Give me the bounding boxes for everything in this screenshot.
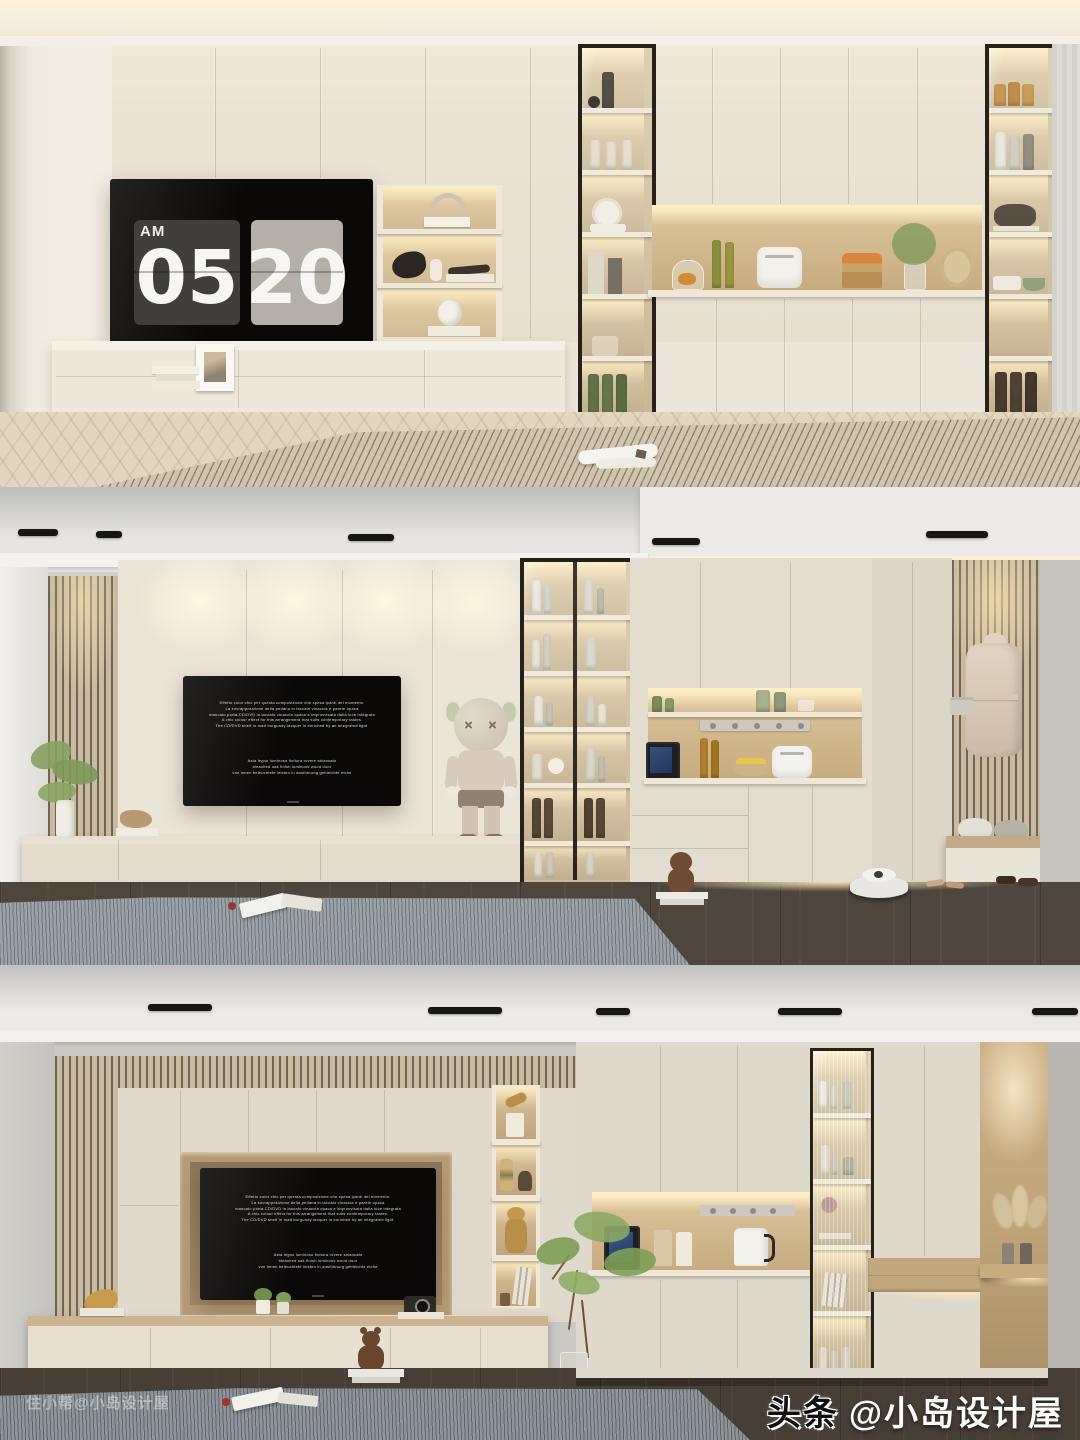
fruit-bowl [733,764,769,776]
kaws-torso [458,750,504,792]
bottle [544,586,551,614]
cabinet-base-shadow [576,1368,1048,1386]
clock-hour: 05 [136,241,239,315]
preserve-jar [1008,82,1020,106]
book-stack [348,1369,404,1377]
kaws-glove [446,786,458,797]
shelf-board [524,615,634,620]
decor-disc [588,96,600,108]
pampas-vase [1020,1243,1032,1265]
toaster-slots [780,752,804,755]
power-strip-knob [732,723,738,729]
canister [774,692,786,712]
console-seam [150,1328,151,1370]
book-stack [398,1312,444,1319]
power-strip-knob [750,1208,756,1214]
shelf-board [492,1196,540,1201]
niche-light-strip [592,1192,810,1199]
wood-slat-band [118,1056,576,1088]
fruit-stand [842,253,882,288]
console-seam [480,1328,481,1370]
console-seam [320,840,321,880]
power-strip-knob [730,1208,736,1214]
pampas-plume [1012,1185,1028,1227]
bottle [534,852,542,878]
bottle [586,748,595,782]
framed-photo [608,258,622,294]
canister [756,690,770,712]
wine-bottle [995,372,1007,416]
spice-jar [665,698,674,712]
recessed-linear-light [348,534,394,541]
appliance-niche [648,688,862,780]
book-stack [150,381,200,389]
display-column [492,1085,540,1308]
cabinet-door-seam [784,299,785,415]
crown-molding [0,1030,1080,1042]
recessed-linear-light [596,1008,630,1015]
bottle [534,696,543,726]
recessed-linear-light [1032,1008,1078,1015]
book-stack [156,374,196,381]
console-seam [270,1328,271,1370]
shelf-board [989,232,1056,237]
shelf-board-inner [648,712,862,717]
shelf-board [989,356,1056,361]
coffee-machine [757,247,802,288]
wine-glass [590,140,600,170]
tv-glare [183,676,401,806]
shelf-board [989,170,1056,175]
tv-caption-line: The CD/DVD shelf in matt burgundy lacque… [183,723,401,729]
right-wall [1040,560,1080,882]
book-stack [446,274,494,282]
watermark-right: 头条 @小岛设计屋 [767,1386,1064,1435]
teddy-bear-ear [374,1327,381,1334]
cabinet-mullion [573,562,577,880]
hourglass [500,1159,513,1191]
preserve-jar [1022,84,1034,106]
power-strip-knob [770,1208,776,1214]
cabinet-door-seam [924,1046,925,1256]
cabinet-door-seam [248,1090,249,1152]
kettle-handle [764,1234,775,1262]
tv-caption-secondary: Asta legno luminoso finitura rovere sbia… [200,1252,436,1269]
shelf-board [377,283,502,288]
bottle [543,634,551,670]
power-strip-knob [754,723,760,729]
shelf-board [524,783,634,788]
recessed-linear-light [428,1007,502,1014]
wine-bottle [1025,372,1037,416]
cabinet-door-seam [917,48,918,204]
cabinet-door-seam [530,48,531,338]
robot-vacuum-button [874,871,883,878]
glass-display-cabinet-left [578,44,656,428]
tv-glare [200,1168,436,1300]
liquor-bottle [1009,136,1020,170]
right-wall-curtain [1052,44,1080,420]
plate-stack [993,276,1021,290]
top-panel: 05 20 AM [0,0,1080,487]
teddy-bear-ear [360,1327,367,1334]
shelf-board [582,108,652,113]
rattan-plate [940,247,974,287]
coffee-pouch [654,1230,672,1266]
bottle [586,638,596,670]
cabinet-door-seam [716,299,717,415]
wood-sculpture [120,810,152,828]
glass-display-cabinet [520,558,638,892]
wine-bottle [596,798,605,838]
interior-design-collage: 05 20 AM [0,0,1080,1440]
decor-box [506,1113,524,1137]
niche-counter [648,290,985,297]
tv-logo [287,801,299,803]
book-stack [428,326,480,336]
cabinet-door-seam [790,562,791,688]
bottle [532,754,542,782]
spice-jar [652,696,662,712]
shelf-board [989,294,1056,299]
cabinet-door-seam [700,562,701,688]
wall-tv: Effetto color chic per questa composizio… [183,676,401,806]
bearbrick-body [505,1219,527,1253]
herringbone-floor [0,412,1080,487]
small-cup [500,1293,510,1306]
floating-console [22,836,528,884]
cabinet-door-seam [120,1205,178,1206]
bottle [586,852,594,878]
tablet-screen [650,747,672,773]
oil-bottle [725,242,734,288]
liquor-bottle [1023,134,1034,170]
cloche-fruit [678,273,696,285]
book-stack [993,226,1039,231]
tv-logo [312,1295,324,1297]
right-wall [1048,1042,1080,1388]
magazine [588,252,604,294]
glass-display-cabinet-right [985,44,1060,428]
lipstick-decor [222,1398,230,1406]
recessed-linear-light [778,1008,842,1015]
kaws-head [454,698,508,752]
display-shelves [377,185,502,343]
wall-tv: Effetto color chic per questa composizio… [200,1168,436,1300]
cabinet-door-seam [316,1090,317,1152]
cabinet-door-seam [748,786,749,882]
plate-stack [590,224,626,232]
dark-bottle [602,72,614,108]
framed-art-motif [204,352,226,382]
coffee-pouch [676,1232,692,1266]
tv-caption-line: von innen beleuchtete leisten in ausführ… [200,1264,436,1270]
console-seam [56,376,561,377]
dark-jar [518,1171,532,1191]
cabinet-door-seam [712,48,713,204]
cabinet-door-seam [425,48,426,184]
bottle [546,852,554,878]
green-bowl [1023,278,1045,291]
wine-glass [606,142,616,170]
drop-ceiling-box [640,487,1080,560]
gray-rug [0,896,690,965]
shelf-board [524,727,634,732]
crown-molding [0,36,1080,46]
recessed-linear-light [18,529,58,536]
kaws-figure [446,698,516,850]
wine-bottle [1010,372,1022,416]
tv-caption-line: von innen beleuchtete leisten in ausführ… [183,770,401,776]
coffee-machine-slots [765,255,794,258]
shelf-board [492,1140,540,1145]
rug-stripes [0,896,690,965]
tv-caption-line: The CD/DVD shelf in matt burgundy lacque… [200,1217,436,1223]
wine-glass [622,140,632,170]
book-stack [352,1377,400,1383]
shelf-board [582,232,652,237]
book-stack [656,892,708,899]
green-bottle [602,374,613,416]
tv-caption-secondary: Asta legno luminoso finitura rovere sbia… [183,758,401,775]
fluted-glass-cabinet [810,1048,874,1391]
shelf-board [524,671,634,676]
tv-caption-primary: Effetto color chic per questa composizio… [183,700,401,729]
magazine-page [596,457,656,469]
wine-bottle [584,798,593,838]
book-stack [116,828,158,836]
console-seam [118,840,119,880]
kaws-leg [484,806,500,836]
tv-caption-primary: Effetto color chic per questa composizio… [200,1194,436,1223]
power-strip-knob [710,1208,716,1214]
loafers [996,876,1016,884]
floating-console [28,1316,548,1372]
preserve-jar [994,84,1006,106]
kaws-glove [504,786,516,797]
shelf-board [989,108,1056,113]
middle-panel: Effetto color chic per questa composizio… [0,487,1080,965]
power-strip-knob [776,723,782,729]
bottle [598,756,605,782]
kaws-leg [462,806,478,836]
oil-bottle [712,240,721,288]
shelf-board [582,356,652,361]
niche-counter [644,778,866,784]
appliance-niche [652,205,982,292]
watermark-handle: @小岛设计屋 [849,1386,1064,1435]
cabinet-door-seam [215,48,216,178]
robe-belt [970,695,1018,700]
bottle [532,580,541,614]
console-seam [424,350,425,408]
cabinet-door-seam [848,48,849,204]
watermark-left: 住小帮@小岛设计屋 [26,1392,170,1413]
wall-panel-seam [432,570,433,880]
bottom-panel: Effetto color chic per questa composizio… [0,965,1080,1440]
drawer-seam [632,815,748,816]
loafers [1018,878,1038,886]
shelf-board [582,294,652,299]
cabinet-door-seam [320,48,321,178]
table-lamp [548,758,564,774]
shelf-board [492,1256,540,1261]
flip-clock-tv: 05 20 AM [110,179,373,343]
cabinet-door-seam [852,299,853,415]
ceiling [0,965,1080,1035]
clock-meridiem: AM [140,223,165,240]
plant-pot [277,1302,289,1314]
cabinet-door-seam [912,562,913,880]
robe-body [966,643,1022,757]
teddy-bear-body [668,868,694,894]
figurine [430,259,442,281]
bottle [597,588,604,614]
power-strip-knob [798,723,804,729]
teddy-bear-body [358,1345,384,1371]
cabinet-door-seam [660,1046,661,1192]
shelf-board [524,841,634,846]
recessed-linear-light [926,531,988,538]
power-strip-knob [710,723,716,729]
toaster [772,746,812,778]
liquor-bottle [995,132,1006,170]
niche-light-strip [652,205,982,213]
book-stack [424,217,470,227]
shelf-board [582,170,652,175]
fluted-glass-texture [813,1051,871,1388]
left-wall [0,567,48,882]
green-bottle [616,374,627,416]
console-seam [238,350,239,408]
plant-pot [256,1300,270,1314]
recessed-linear-light [96,531,122,538]
clock-minute: 20 [246,241,349,315]
recessed-linear-light [148,1004,212,1011]
kettle [734,1228,768,1266]
orb-vase [438,300,462,326]
glass-cup [592,336,618,356]
wine-bottle [544,798,553,838]
wine-bottle [532,798,541,838]
cabinet-cell [989,298,1048,358]
watermark-brand: 头条 [767,1386,839,1435]
shelf-board [377,229,502,234]
plant-vase [904,263,926,290]
bottle [584,580,593,614]
lipstick-decor [228,902,236,910]
plant-leaves [892,223,936,265]
bottle [546,702,553,726]
cabinet-door-seam [384,1090,385,1152]
drawer-seam [632,848,748,849]
plant-vase [56,800,74,838]
console-seam [390,1328,391,1370]
cabinet-door-seam [812,786,813,882]
niche-light-strip [648,688,862,695]
flip-split-line [134,271,343,273]
green-bottle [588,374,599,416]
book-stack [80,1308,124,1316]
hanging-bag [950,697,974,715]
glass-cups [798,700,814,711]
cabinet-door-seam [780,48,781,204]
cabinet-door-seam [920,299,921,415]
dark-wood-floor [0,882,1080,965]
book-stack [152,366,198,374]
folded-cloth [994,204,1036,228]
pampas-vase [1002,1243,1014,1265]
beer-bottle [700,738,708,778]
candle [598,704,606,726]
cabinet-door-seam [737,1046,738,1192]
bottle [532,640,540,670]
bottle [586,696,595,726]
recessed-linear-light [652,538,700,545]
book-stack [660,899,704,905]
beer-bottle [711,740,719,778]
